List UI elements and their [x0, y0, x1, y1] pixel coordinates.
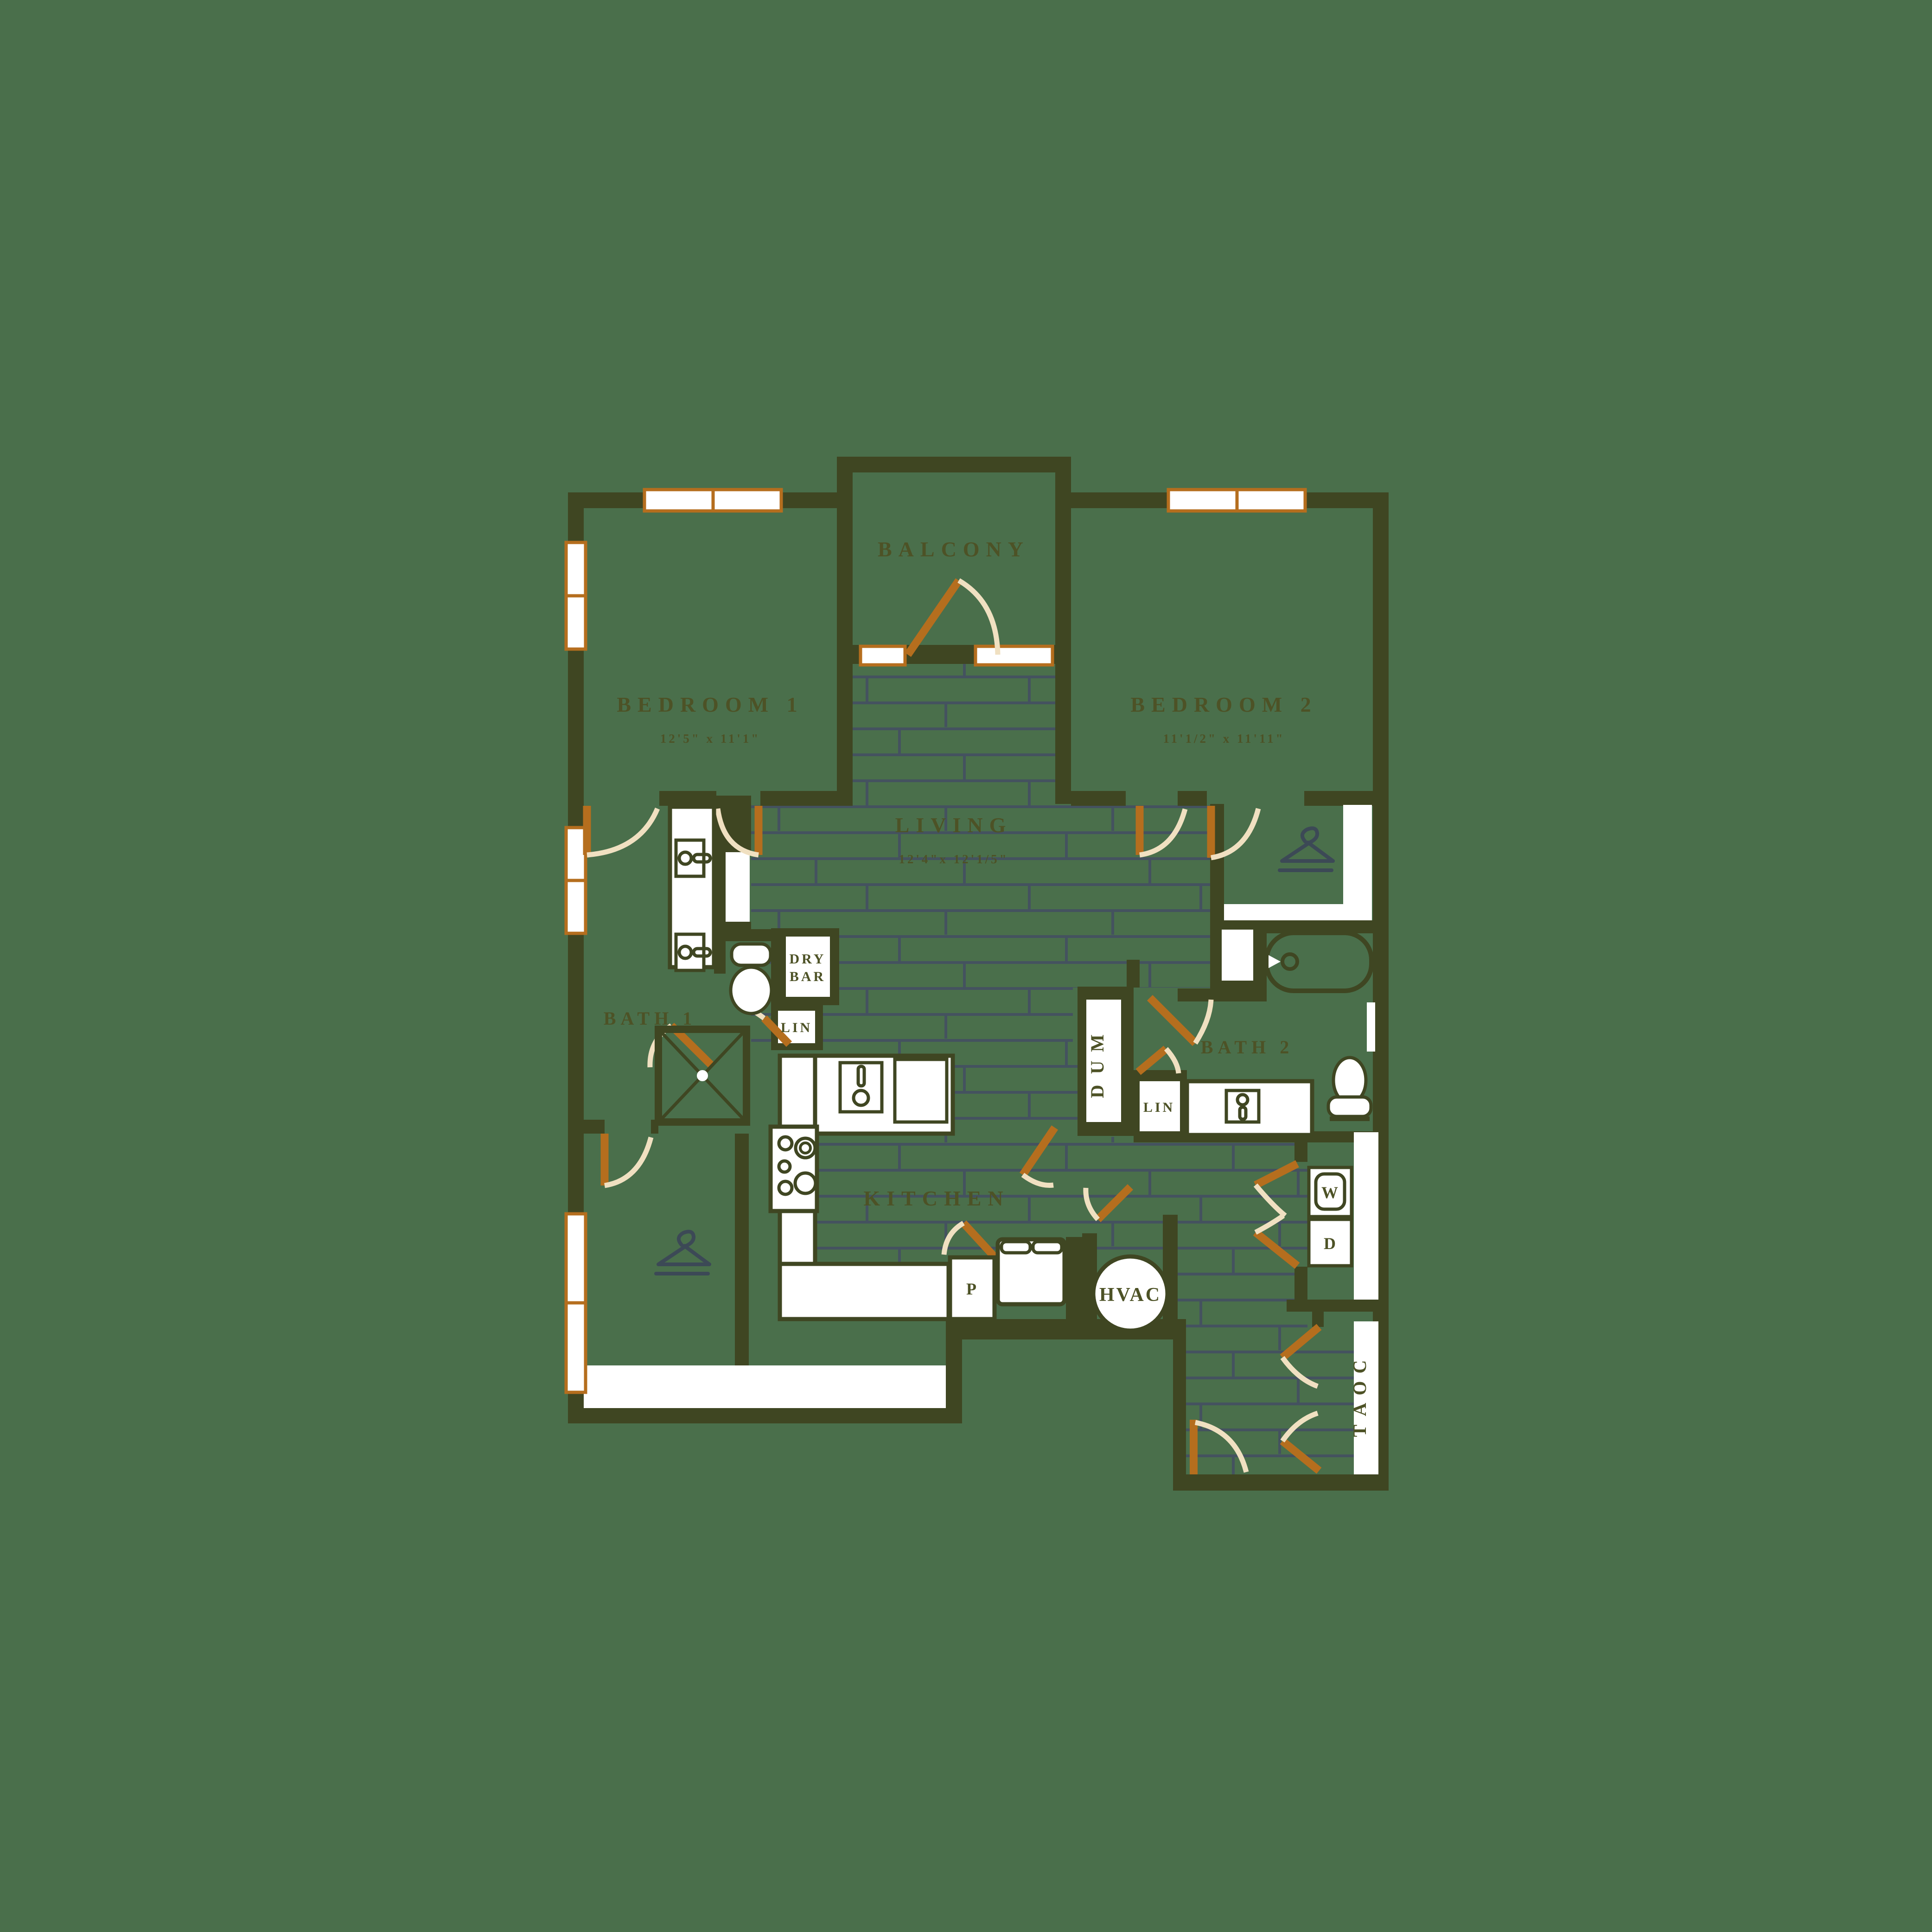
bedroom2-label: BEDROOM 2: [1130, 693, 1317, 716]
linen2-label: LIN: [1143, 1100, 1175, 1115]
wall-balcony-top: [837, 457, 1071, 472]
wall-closet1-bottom: [568, 1408, 962, 1423]
wall-hall-stub: [1127, 960, 1140, 988]
coat-closet-interior: [1354, 1321, 1378, 1474]
linen2-door: [1138, 1049, 1179, 1073]
pantry-label: P: [966, 1280, 977, 1298]
bedroom1-dims: 12'5" x 11'1": [660, 732, 761, 746]
wall-entry-left: [1173, 1335, 1186, 1479]
washer-label: W: [1321, 1183, 1339, 1202]
laundry-closet-interior: [1354, 1132, 1378, 1300]
kitchen-island: [895, 1059, 947, 1122]
wall-bedroom1-bottom-b: [760, 791, 853, 806]
wall-balcony-right: [1055, 457, 1071, 804]
tub-drain: [1282, 954, 1297, 969]
mirror-panel: [1367, 1002, 1375, 1052]
bath1-toilet: [731, 944, 772, 1014]
closet2-shelf-bottom: [1224, 904, 1343, 920]
kitchen-stove: [771, 1127, 817, 1211]
closet1-door: [605, 1134, 651, 1186]
wall-connector: [946, 1319, 962, 1423]
coat-label-char: T: [1349, 1423, 1370, 1437]
floor-living-upper: [853, 661, 1055, 808]
bath1-shower: [658, 1029, 746, 1122]
closet2-shelf-right: [1343, 805, 1372, 920]
wall-coat-stub: [1312, 1307, 1324, 1327]
wall-closet1-right: [735, 1134, 749, 1365]
hanger-icon: [656, 1231, 709, 1274]
wall-bedroom2-bottom-a: [1071, 791, 1126, 806]
bath1-cased-opening: [726, 852, 750, 922]
living-dims: 12'4"x 12'1/5": [899, 852, 1008, 866]
bedroom2-dims: 11'1/2" x 11'11": [1163, 732, 1285, 746]
tub-spout: [1269, 955, 1281, 968]
balcony-label: BALCONY: [878, 537, 1030, 561]
floor-entry: [1186, 1330, 1354, 1476]
bath2-label: BATH 2: [1201, 1037, 1294, 1058]
wall-hvac-right: [1163, 1215, 1178, 1335]
coat-label-char: O: [1349, 1379, 1370, 1395]
bedroom1-label: BEDROOM 1: [617, 693, 803, 716]
kitchen-counter-bottom: [780, 1264, 949, 1319]
mud-label-char: M: [1087, 1033, 1108, 1052]
living-label: LIVING: [895, 813, 1013, 837]
dry-bar-interior: [786, 937, 830, 997]
balcony-door: [908, 580, 998, 655]
wall-closet1-top-a: [584, 1120, 605, 1134]
bath2-cased-opening: [1222, 930, 1253, 981]
kitchen-label: KITCHEN: [863, 1186, 1009, 1210]
dry-bar-label-line1: DRY: [790, 951, 826, 967]
window-balcony-left: [861, 646, 905, 665]
wall-bath1-toilet-back: [714, 929, 774, 941]
floor-plan-canvas: BALCONY BEDROOM 1 12'5" x 11'1" BEDROOM …: [0, 0, 1932, 1932]
bath2-vanity: [1187, 1081, 1312, 1135]
window-balcony-right: [976, 646, 1052, 665]
mud-label-char: D: [1087, 1083, 1108, 1098]
wall-fridge-right: [1066, 1237, 1082, 1320]
fridge: [998, 1239, 1065, 1304]
coat-label-char: A: [1349, 1401, 1370, 1416]
wall-bath2-mid: [1178, 988, 1267, 1001]
bath2-tub: [1267, 933, 1371, 991]
wall-bedroom1-bottom-a: [659, 791, 716, 806]
mud-label-char: U: [1087, 1059, 1108, 1074]
built-in-shelf: [584, 1365, 946, 1408]
wall-bedroom1-right: [837, 508, 853, 804]
wall-entry-bottom: [1173, 1474, 1389, 1491]
dry-bar-label-line2: BAR: [790, 969, 826, 984]
coat-label-char: C: [1349, 1358, 1370, 1374]
bath1-label: BATH 1: [604, 1008, 696, 1029]
wall-laundry-bottom: [1287, 1300, 1378, 1312]
bath2-toilet: [1328, 1058, 1371, 1121]
hvac-label: HVAC: [1099, 1284, 1161, 1306]
wall-laundry-stub-bottom: [1294, 1267, 1307, 1300]
linen1-label: LIN: [781, 1020, 812, 1035]
bedroom1-door: [587, 806, 657, 855]
dryer-label: D: [1324, 1234, 1337, 1253]
wall-bedroom2-bottom-b: [1178, 791, 1207, 806]
hanger-icon: [1280, 828, 1333, 870]
wall-bedroom2-bottom-c: [1304, 791, 1373, 806]
floor-plan: BALCONY BEDROOM 1 12'5" x 11'1" BEDROOM …: [0, 0, 1932, 1932]
bath1-vanity: [670, 807, 714, 970]
